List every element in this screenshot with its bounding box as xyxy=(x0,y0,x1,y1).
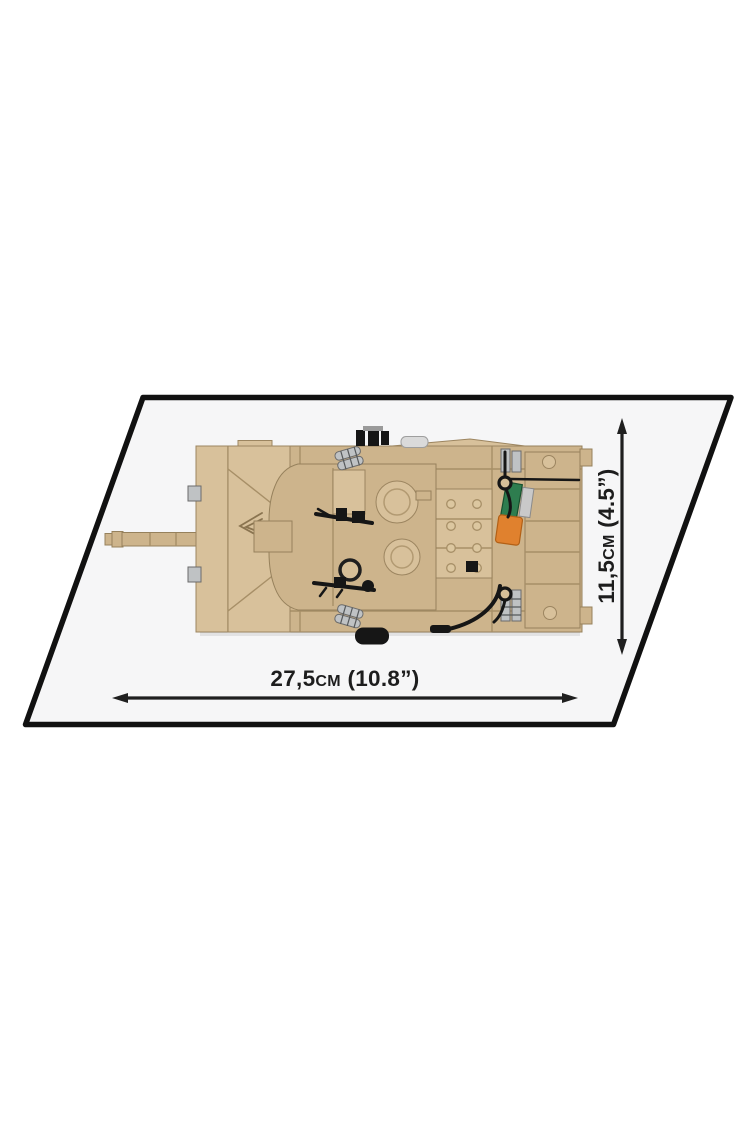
gray-brick-top xyxy=(401,437,428,448)
tow-hook-left xyxy=(543,456,556,469)
gun-mantlet xyxy=(254,521,292,552)
width-dimension-label: 27,5cm (10.8”) xyxy=(270,666,419,691)
front-light-right xyxy=(188,567,201,582)
loader-hatch xyxy=(384,539,420,575)
engine-deck xyxy=(432,489,492,578)
product-image: 27,5cm (10.8”) 11,5cm (4.5”) xyxy=(0,0,750,1124)
exhaust xyxy=(355,628,389,645)
tow-hook-right xyxy=(544,607,557,620)
commander-hatch xyxy=(376,481,418,523)
black-bracket xyxy=(466,561,478,572)
front-light-left xyxy=(188,486,201,501)
height-dimension-label: 11,5cm (4.5”) xyxy=(594,468,619,603)
product-dimension-figure: 27,5cm (10.8”) 11,5cm (4.5”) xyxy=(0,0,750,1124)
orange-brick xyxy=(495,514,523,545)
